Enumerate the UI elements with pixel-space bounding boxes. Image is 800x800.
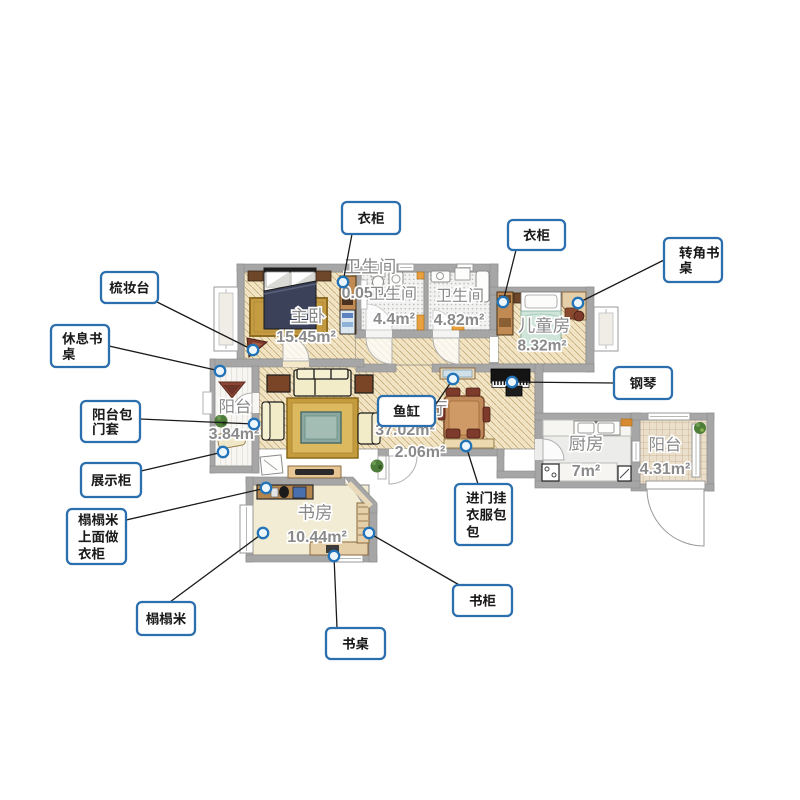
svg-text:4.4m²: 4.4m²: [373, 311, 415, 328]
svg-text:7m²: 7m²: [572, 463, 600, 480]
svg-text:4.31m²: 4.31m²: [640, 461, 691, 478]
svg-text:15.45m²: 15.45m²: [276, 329, 336, 346]
svg-text:10.44m²: 10.44m²: [287, 529, 347, 546]
svg-text:8.32m²: 8.32m²: [517, 338, 566, 355]
svg-text:4.82m²: 4.82m²: [434, 312, 485, 329]
svg-text:2.06m²: 2.06m²: [395, 444, 446, 461]
